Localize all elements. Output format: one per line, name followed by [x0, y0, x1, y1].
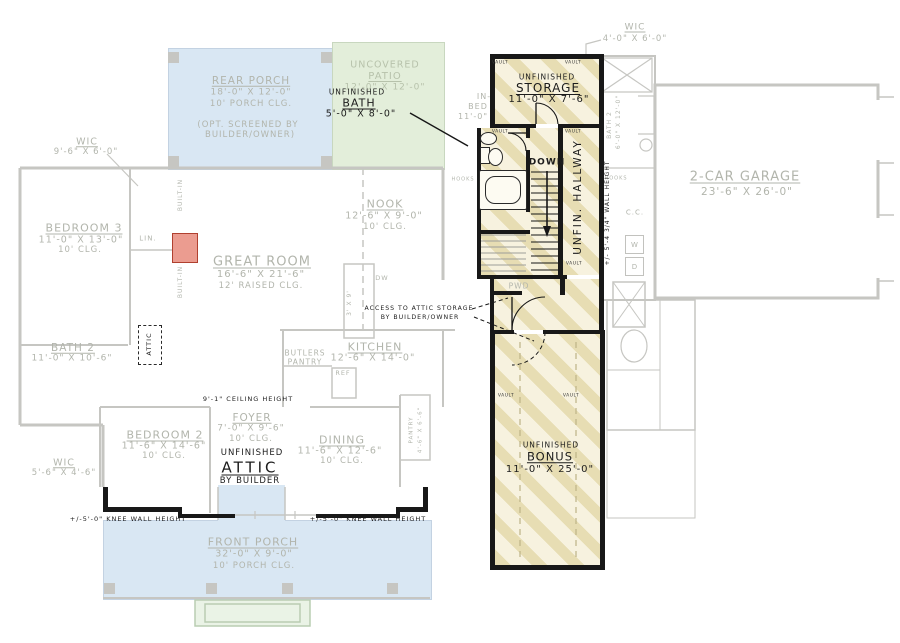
wic-label: WIC: [625, 24, 646, 33]
vault-marker: VAULT: [492, 61, 508, 66]
vault-marker: VAULT: [565, 61, 581, 66]
washer-box: W: [625, 235, 644, 254]
wall-segment: [103, 507, 182, 512]
wall-height-note: +/- 5'-4 3/4" WALL HEIGHT: [605, 160, 611, 265]
bath2-right-dims: 6'-0" X 12'-0": [616, 95, 622, 149]
built-in-label: BUILT-IN: [178, 266, 184, 298]
rear-porch-note: BUILDER/OWNER): [205, 131, 295, 140]
nook-label: NOOK: [367, 199, 404, 210]
kitchen-dims: 12'-6" X 14'-0": [331, 353, 416, 363]
foyer-clg: 10' CLG.: [229, 435, 273, 444]
garage-label: 2-CAR GARAGE: [690, 171, 801, 184]
down-label: DOWN: [529, 159, 566, 168]
wall-segment: [543, 330, 605, 334]
in-bed-label: IN-: [477, 93, 491, 101]
ceiling-height-note: 9'-1" CEILING HEIGHT: [203, 396, 293, 403]
nook-clg: 10' CLG.: [363, 223, 407, 232]
nook-dims: 12'-6" X 9'-0": [345, 211, 423, 221]
patio-label: PATIO: [368, 72, 401, 82]
ref-label: REF: [335, 370, 350, 377]
rear-porch-dims: 18'-0" X 12'-0": [211, 89, 292, 98]
foyer-dims: 7'-0" X 9'-6": [217, 425, 285, 434]
bedroom3-label: BEDROOM 3: [46, 223, 123, 234]
coat-closet-label: C.C.: [626, 210, 644, 217]
wall-segment: [490, 277, 494, 334]
attic-access-label: ATTIC: [146, 332, 153, 355]
dryer-label: D: [632, 263, 637, 271]
in-bed-dims: 11'-0": [458, 113, 488, 121]
foyer-label: FOYER: [232, 413, 271, 424]
patio-label: UNCOVERED: [350, 60, 419, 70]
front-porch-clg: 10' PORCH CLG.: [213, 562, 295, 571]
wall-segment: [490, 330, 495, 570]
bath2-right-label: BATH 2: [607, 111, 613, 139]
unf-bath-label: BATH: [342, 98, 375, 109]
pantry-dims: 4'-6" X 6'-6": [418, 407, 424, 453]
vault-marker: VAULT: [566, 262, 582, 267]
hooks-label: HOOKS: [451, 178, 474, 183]
wall-segment: [423, 487, 428, 512]
wic-dims: 5'-6" X 4'-6": [32, 469, 97, 478]
vault-marker: VAULT: [498, 394, 514, 399]
in-bed-label: BED: [468, 103, 488, 111]
great-room-label: GREAT ROOM: [213, 256, 311, 269]
butlers-pantry-label: PANTRY: [288, 358, 323, 366]
wall-segment: [558, 124, 604, 128]
wall-segment: [477, 230, 530, 234]
unf-bonus-dims: 11'-0" X 25'-0": [506, 465, 594, 475]
bedroom3-dims: 11'-0" X 13'-0": [39, 235, 124, 245]
wic-dims: 9'-6" X 6'-0": [54, 148, 119, 157]
unf-bath-label: UNFINISHED: [329, 88, 385, 96]
vault-marker: VAULT: [492, 130, 508, 135]
fireplace: [172, 233, 198, 263]
knee-wall-note: +/-5'-0" KNEE WALL HEIGHT: [70, 516, 186, 523]
vault-marker: VAULT: [563, 394, 579, 399]
attic-access-note: BY BUILDER/OWNER: [381, 315, 460, 321]
bedroom3-clg: 10' CLG.: [58, 246, 102, 255]
unf-bonus-label: UNFINISHED: [523, 441, 579, 449]
plan-lines-overlay: [0, 0, 900, 643]
great-room-dims: 16'-6" X 21'-6": [217, 270, 305, 280]
wic-label: WIC: [76, 137, 98, 147]
kitchen-label: KITCHEN: [348, 342, 403, 353]
front-porch-label: FRONT PORCH: [208, 537, 298, 548]
washer-label: W: [631, 241, 638, 249]
dining-clg: 10' CLG.: [320, 457, 364, 466]
linen-label: LIN.: [139, 236, 156, 243]
bathtub-basin: [485, 176, 521, 204]
butlers-pantry-label: BUTLERS: [284, 349, 325, 357]
wic-dims: 4'-0" X 6'-0": [603, 35, 668, 44]
unf-attic-label: BY BUILDER: [220, 477, 280, 486]
wall-segment: [490, 330, 514, 334]
dryer-box: D: [625, 257, 644, 276]
wic-label: WIC: [53, 458, 75, 468]
unf-hallway-label: UNFIN. HALLWAY: [573, 139, 584, 255]
front-porch-dims: 32'-0" X 9'-0": [215, 549, 293, 559]
unf-bath-dims: 5'-0" X 8'-0": [326, 109, 397, 119]
powder-label: PWD: [509, 282, 530, 290]
unf-storage-label: STORAGE: [516, 82, 580, 94]
wall-segment: [178, 514, 235, 518]
vault-marker: VAULT: [565, 130, 581, 135]
wall-segment: [490, 54, 604, 59]
wall-segment: [558, 128, 563, 279]
knee-wall-note: +/-5'-0" KNEE WALL HEIGHT: [310, 516, 426, 523]
attic-access-note: ACCESS TO ATTIC STORAGE: [365, 306, 474, 312]
bath2-left-dims: 11'-0" X 10'-6": [32, 355, 113, 364]
wall-segment: [560, 277, 565, 295]
bedroom2-dims: 11'-6" X 14'-6": [122, 441, 207, 451]
rear-porch-clg: 10' PORCH CLG.: [210, 100, 292, 109]
unf-bonus-label: BONUS: [527, 451, 573, 463]
wall-segment: [600, 332, 605, 570]
wall-segment: [526, 128, 530, 138]
wall-segment: [490, 565, 605, 570]
great-room-clg: 12' RAISED CLG.: [219, 282, 304, 291]
dining-dims: 11'-6" X 12'-6": [298, 446, 383, 456]
garage-dims: 23'-6" X 26'-0": [701, 187, 793, 198]
floor-plan-canvas: ATTIC W D REAR PORCH 18'-0" X 12'-0" 10'…: [0, 0, 900, 643]
dw-label: DW: [375, 275, 388, 282]
built-in-label: BUILT-IN: [178, 179, 184, 211]
unf-attic-label: UNFINISHED: [221, 449, 284, 458]
bedroom2-label: BEDROOM 2: [127, 430, 204, 441]
rear-porch-note: (OPT. SCREENED BY: [197, 121, 298, 130]
wall-segment: [477, 230, 481, 279]
toilet-bowl: [488, 148, 503, 166]
bath2-left-label: BATH 2: [51, 343, 95, 354]
wall-segment: [490, 291, 522, 295]
pantry-label: PANTRY: [409, 416, 415, 443]
island-dims: 3' X 9': [347, 290, 353, 316]
unf-storage-dims: 11'-0" X 7'-6": [509, 95, 590, 105]
dining-label: DINING: [319, 435, 365, 446]
unf-storage-label: UNFINISHED: [519, 73, 575, 81]
bedroom2-clg: 10' CLG.: [142, 452, 186, 461]
rear-porch-label: REAR PORCH: [212, 76, 290, 87]
unf-attic-label: ATTIC: [221, 461, 278, 476]
